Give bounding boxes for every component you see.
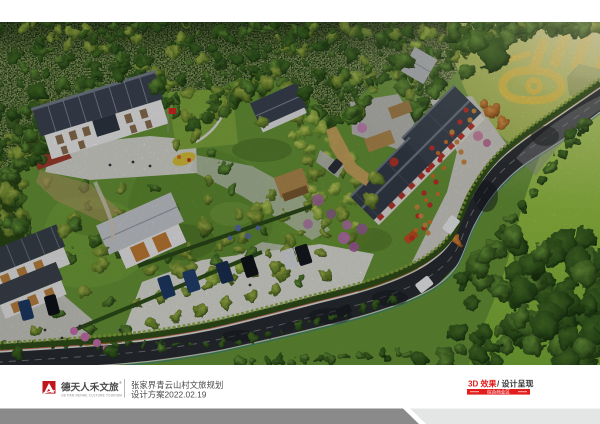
svg-text:德天人禾文旅: 德天人禾文旅 xyxy=(61,382,119,394)
svg-text:®: ® xyxy=(119,380,122,385)
svg-text:3D 效果: 3D 效果 xyxy=(468,379,496,389)
svg-text:综合商业区: 综合商业区 xyxy=(487,389,510,396)
svg-text:张家界青云山村文旅规划: 张家界青云山村文旅规划 xyxy=(131,380,223,390)
svg-text:DETIAN RENHE CULTURE TOURISM: DETIAN RENHE CULTURE TOURISM xyxy=(62,394,123,398)
svg-text:/ 设计呈现: / 设计呈现 xyxy=(497,379,533,389)
svg-text:设计方案2022.02.19: 设计方案2022.02.19 xyxy=(131,390,207,400)
